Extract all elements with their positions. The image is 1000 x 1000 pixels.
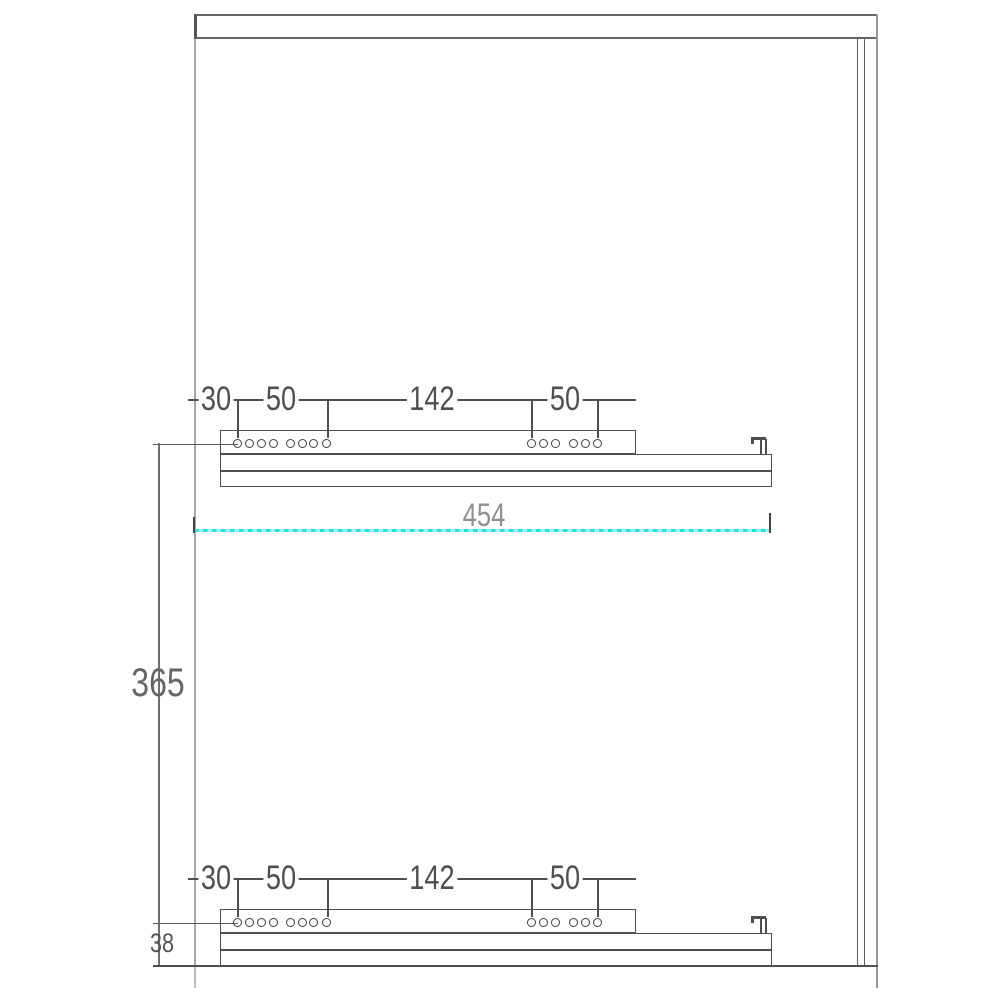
dimension-drop-line xyxy=(597,399,599,438)
width-dimension-label: 454 xyxy=(463,499,506,531)
hole-dimension-label: 30 xyxy=(198,861,233,895)
rear-bracket-lip xyxy=(751,916,754,923)
dimension-drop-line xyxy=(531,399,533,438)
hole-level-extension-line xyxy=(153,444,238,446)
slide-mounting-hole xyxy=(309,918,318,927)
bottom-offset-dimension-label: 38 xyxy=(150,930,174,957)
dimension-drop-line xyxy=(237,399,239,438)
dimension-drop-line xyxy=(597,878,599,917)
slide-mounting-hole xyxy=(257,918,266,927)
slide-mounting-hole xyxy=(569,918,578,927)
hole-dimension-label: 50 xyxy=(547,861,582,895)
width-dimension-tick-right xyxy=(769,513,771,533)
slide-mounting-hole xyxy=(593,918,602,927)
slide-mounting-hole xyxy=(527,439,536,448)
hole-dimension-label: 142 xyxy=(407,382,457,416)
slide-mounting-hole xyxy=(298,439,307,448)
height-dimension-label: 365 xyxy=(131,663,184,703)
slide-bar-1 xyxy=(220,454,772,471)
cabinet-left-edge-stub xyxy=(194,965,196,988)
dimension-drop-line xyxy=(327,878,329,917)
hole-dimension-label: 142 xyxy=(407,861,457,895)
dimension-drop-line xyxy=(327,399,329,438)
slide-mounting-hole xyxy=(322,918,331,927)
hole-dimension-label: 30 xyxy=(198,382,233,416)
slide-mounting-hole xyxy=(309,439,318,448)
hole-dimension-label: 50 xyxy=(263,861,298,895)
slide-mounting-hole xyxy=(551,439,560,448)
slide-bar-1 xyxy=(220,933,772,950)
slide-mounting-hole xyxy=(245,439,254,448)
slide-mounting-hole xyxy=(539,439,548,448)
rear-bracket-stem-left xyxy=(760,439,762,454)
cad-drawing-canvas: 305014250 305014250 365 38 454 xyxy=(0,0,1000,1000)
rear-bracket-lip xyxy=(751,437,754,444)
dimension-drop-line xyxy=(531,878,533,917)
hole-dimension-label: 50 xyxy=(547,382,582,416)
rear-bracket-stem-right xyxy=(765,439,767,454)
slide-mounting-hole xyxy=(527,918,536,927)
slide-mounting-hole xyxy=(286,918,295,927)
slide-mounting-hole xyxy=(322,439,331,448)
slide-mounting-hole xyxy=(269,918,278,927)
slide-mounting-hole xyxy=(581,918,590,927)
slide-mounting-hole xyxy=(298,918,307,927)
cabinet-right-inner-line-1 xyxy=(857,39,859,966)
cabinet-top-panel xyxy=(194,14,877,39)
cabinet-right-outer-line xyxy=(876,14,878,988)
slide-mounting-hole xyxy=(539,918,548,927)
dimension-drop-line xyxy=(237,878,239,917)
slide-bar-2 xyxy=(220,950,772,966)
hole-level-extension-line xyxy=(153,923,238,925)
slide-mounting-hole xyxy=(551,918,560,927)
slide-mounting-hole xyxy=(269,439,278,448)
slide-mounting-hole xyxy=(257,439,266,448)
slide-mounting-hole xyxy=(581,439,590,448)
slide-mounting-hole xyxy=(593,439,602,448)
rear-bracket-stem-right xyxy=(765,918,767,933)
slide-mounting-hole xyxy=(245,918,254,927)
slide-mounting-hole xyxy=(286,439,295,448)
rear-bracket-stem-left xyxy=(760,918,762,933)
width-dimension-tick-left xyxy=(193,517,195,533)
cabinet-right-inner-line-2 xyxy=(864,39,866,966)
slide-mounting-hole xyxy=(569,439,578,448)
slide-bar-2 xyxy=(220,471,772,487)
cabinet-left-edge-line xyxy=(194,39,196,965)
hole-dimension-label: 50 xyxy=(263,382,298,416)
